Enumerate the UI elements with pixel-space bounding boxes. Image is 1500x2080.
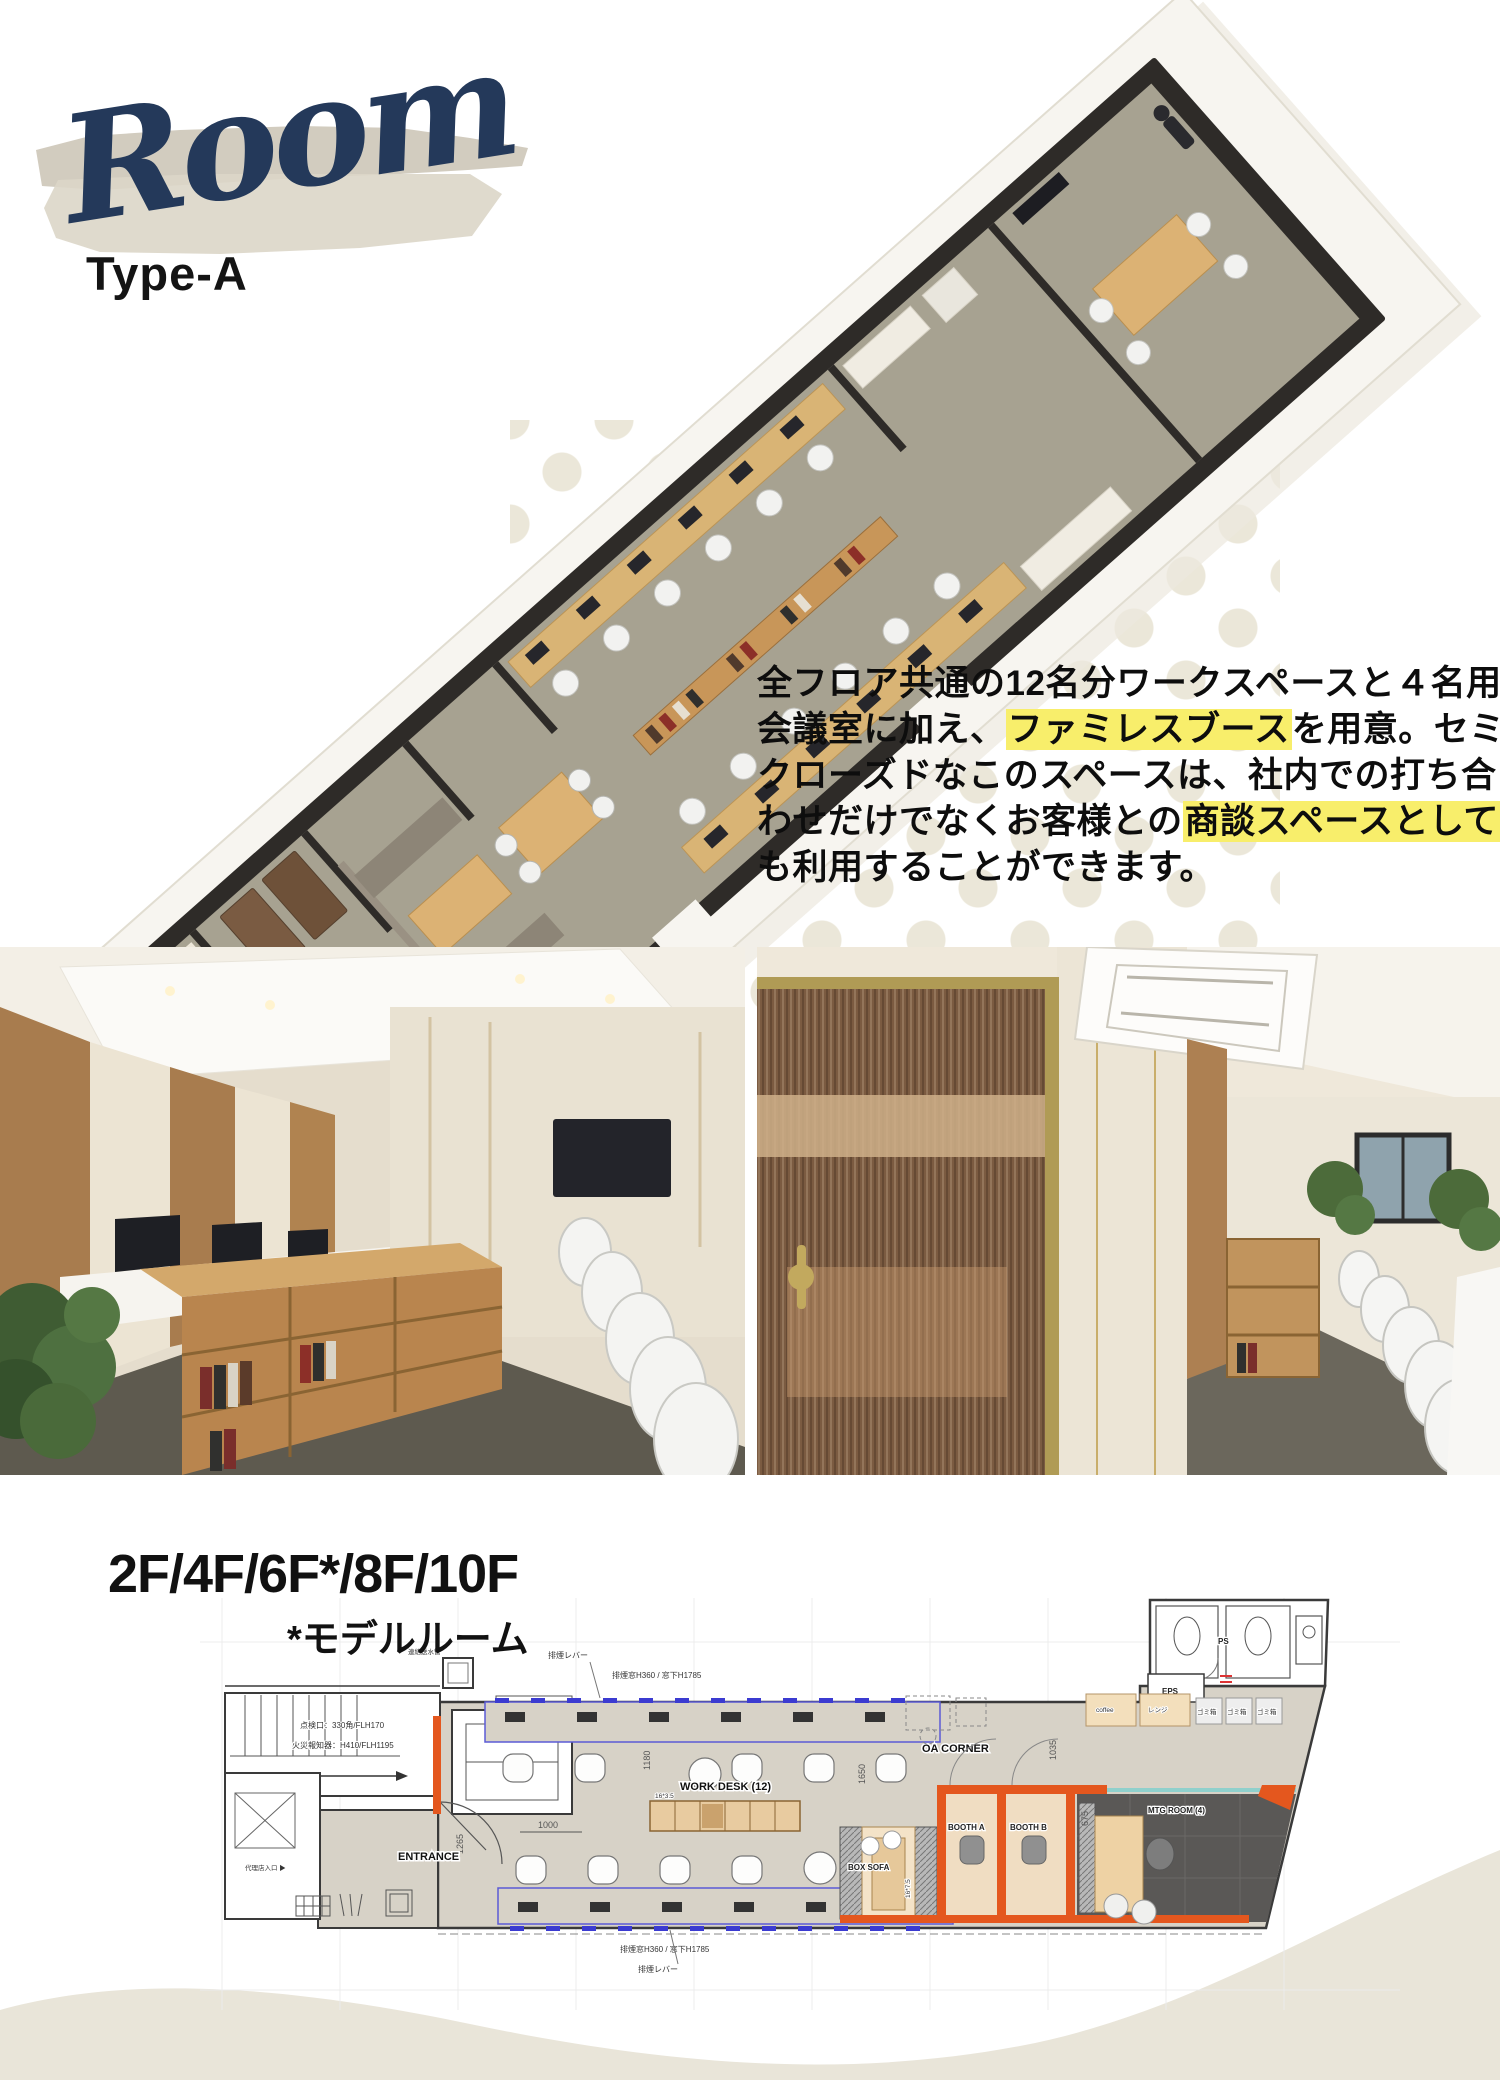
orange-wall	[433, 1716, 441, 1814]
box-sofa: BOX SOFA 16*7.5	[840, 1827, 937, 1923]
intro-line: 全フロア共通の12名分ワークスペースと４名用	[757, 661, 1497, 707]
mtg-room: MTG ROOM (4) 675	[1077, 1785, 1296, 1924]
photo-office-interior	[0, 947, 745, 1475]
intro-text: わせだけでなくお客様との	[757, 802, 1183, 841]
svg-text:排煙レバー: 排煙レバー	[638, 1964, 678, 1974]
intro-line: 会議室に加え、ファミレスブースを用意。セミ	[757, 707, 1497, 753]
intro-highlight: ファミレスブース	[1006, 709, 1292, 750]
svg-text:排煙窓H360 / 窓下H1785: 排煙窓H360 / 窓下H1785	[620, 1944, 710, 1954]
intro-line: わせだけでなくお客様との商談スペースとして	[757, 799, 1497, 845]
fire-detector-note: 火災報知器：H410/FLH1195	[292, 1740, 394, 1750]
entrance-floor	[318, 1810, 438, 1928]
sofa-size-label: 16*7.5	[905, 1879, 912, 1898]
intro-text: クローズドなこのスペースは、社内での打ち合	[757, 756, 1497, 795]
intro-text: 全フロア共通の12名分ワークスペースと４名用	[757, 664, 1500, 703]
reeded-glass-door	[757, 977, 1059, 1475]
booth-a-label: BOOTH A	[948, 1823, 985, 1832]
svg-text:排煙窓H360 / 窓下H1785: 排煙窓H360 / 窓下H1785	[612, 1670, 702, 1680]
box-sofa-label: BOX SOFA	[848, 1863, 890, 1872]
ps-label: PS	[1218, 1637, 1229, 1646]
svg-text:1000: 1000	[538, 1820, 558, 1830]
subtitle-type-a: Type-A	[86, 246, 248, 301]
wood-column	[1187, 1039, 1227, 1379]
corridor-view	[1187, 1039, 1500, 1475]
oa-corner-label: OA CORNER	[922, 1743, 989, 1755]
intro-line: も利用することができます。	[757, 845, 1497, 891]
service-room: 代理店入口 ▶	[225, 1773, 320, 1919]
floors-heading: 2F/4F/6F*/8F/10F	[108, 1543, 518, 1605]
wall-tv	[553, 1119, 671, 1197]
bookshelf	[1227, 1239, 1319, 1377]
photo-glass-door	[757, 947, 1500, 1475]
mtg-room-label: MTG ROOM (4)	[1148, 1806, 1205, 1815]
model-room-note: *モデルルーム	[287, 1608, 529, 1663]
dim-675: 675	[1080, 1811, 1090, 1826]
coffee-label: coffee	[1096, 1707, 1114, 1714]
gold-frame	[1045, 977, 1059, 1475]
intro-text: も利用することができます。	[757, 848, 1215, 887]
intro-line: クローズドなこのスペースは、社内での打ち合	[757, 753, 1497, 799]
glass-light-band	[757, 1095, 1045, 1157]
intro-highlight: 商談スペースとして	[1183, 801, 1500, 842]
toilet-wing: PS	[1150, 1600, 1328, 1686]
range-label: レンジ	[1148, 1707, 1168, 1714]
dim-1035: 1035	[1048, 1740, 1058, 1760]
intro-paragraph: 全フロア共通の12名分ワークスペースと４名用 会議室に加え、ファミレスブースを用…	[757, 661, 1497, 891]
top-desk-counter	[485, 1698, 940, 1742]
trash-label-1: ゴミ箱	[1197, 1707, 1217, 1716]
inspection-note: 点検口：330角/FLH170	[300, 1720, 385, 1730]
entrance-label: ENTRANCE	[398, 1851, 459, 1863]
trash-label-2: ゴミ箱	[1227, 1707, 1247, 1716]
dim-1650: 1650	[857, 1764, 867, 1784]
work-desk-label: WORK DESK (12)	[680, 1781, 771, 1793]
staff-entrance-label: 代理店入口 ▶	[245, 1863, 286, 1872]
shelf-size-label: 16*3.5	[655, 1793, 674, 1800]
svg-text:排煙レバー: 排煙レバー	[548, 1650, 588, 1660]
intro-text: 会議室に加え、	[757, 710, 1006, 749]
intro-text: を用意。セミ	[1292, 710, 1500, 749]
trash-label-3: ゴミ箱	[1257, 1707, 1277, 1716]
booth-b-label: BOOTH B	[1010, 1823, 1047, 1832]
dim-1180: 1180	[642, 1751, 652, 1770]
